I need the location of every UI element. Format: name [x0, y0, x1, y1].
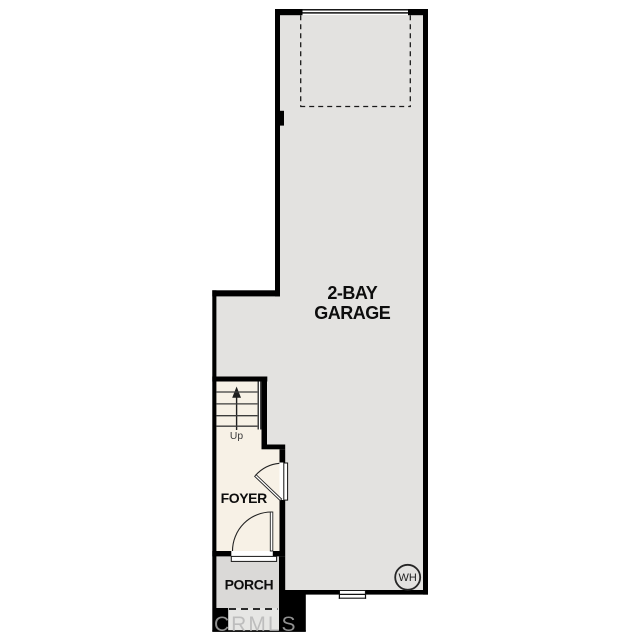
svg-text:PORCH: PORCH [225, 577, 274, 593]
svg-text:Up: Up [230, 431, 243, 442]
svg-text:CRMLS: CRMLS [214, 613, 298, 636]
svg-text:2-BAY: 2-BAY [327, 283, 377, 303]
svg-text:FOYER: FOYER [221, 490, 268, 506]
svg-text:GARAGE: GARAGE [314, 303, 390, 323]
svg-text:WH: WH [399, 572, 417, 584]
